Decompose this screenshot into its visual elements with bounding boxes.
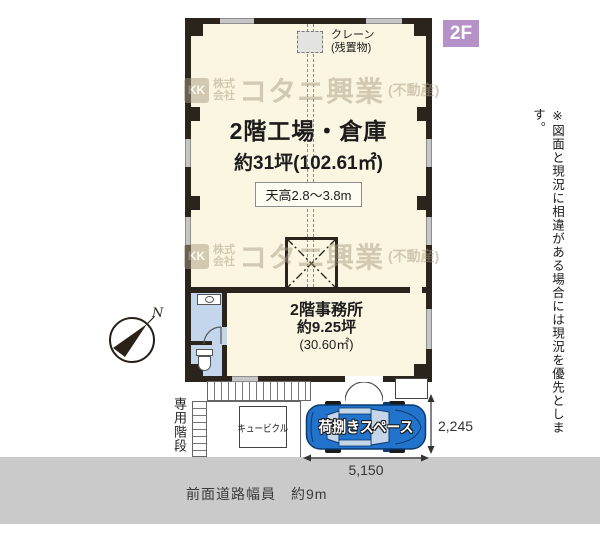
stairs-label: 専用階段 [170, 397, 189, 463]
side-box [395, 378, 428, 399]
toilet-bowl-icon [198, 356, 211, 371]
ground-boundary-line [207, 401, 300, 402]
window [426, 309, 432, 349]
dimension-width-label: 5,150 [303, 462, 429, 478]
factory-area: 約31坪(102.61㎡) [191, 148, 426, 175]
window [232, 376, 258, 382]
watermark: KK 株式 会社 コタニ興業 (不動産) [184, 70, 439, 110]
cubicle-label: キュービクル [238, 420, 289, 435]
watermark-company-name: コタニ興業 [239, 70, 384, 110]
svg-text:N: N [151, 306, 164, 321]
window [220, 18, 254, 24]
watermark-suffix: (不動産) [388, 246, 439, 266]
disclaimer-text: ※図面と現況に相違がある場合には現況を優先とします。 [529, 108, 567, 448]
ground-boundary-line [300, 401, 301, 457]
floorplan-canvas: 前面道路幅員 約9m KK 株式 会社 コタニ興業 (不動産) KK 株式 会社… [0, 0, 600, 540]
stairs-lower-flight [192, 401, 207, 457]
office-name: 2階事務所 [227, 302, 426, 319]
ceiling-height-label: 天高2.8〜3.8m [255, 182, 363, 207]
window [366, 18, 402, 24]
floor-badge: 2F [443, 20, 479, 47]
dimension-depth-label: 2,245 [438, 418, 473, 434]
wall-corner [191, 24, 203, 36]
watermark-logo: KK [184, 78, 209, 103]
stairs-upper-flight [207, 381, 311, 401]
loading-space-label: 荷捌きスペース [311, 416, 421, 437]
watermark-prefix: 株式 会社 [213, 78, 235, 102]
door-opening [345, 376, 383, 382]
factory-name: 2階工場・倉庫 [191, 112, 426, 146]
toilet-tank-icon [196, 349, 213, 356]
crane-icon [297, 31, 323, 53]
factory-room-label: 2階工場・倉庫 約31坪(102.61㎡) 天高2.8〜3.8m [191, 112, 426, 207]
wall-corner [414, 364, 426, 376]
watermark-logo: KK [184, 244, 209, 269]
road-width-label: 前面道路幅員 約9m [186, 484, 327, 504]
crane-label: クレーン (残置物) [331, 29, 374, 55]
door-opening [410, 287, 422, 293]
watermark-suffix: (不動産) [388, 80, 439, 100]
watermark: KK 株式 会社 コタニ興業 (不動産) [184, 236, 439, 276]
cubicle-box: キュービクル [239, 406, 287, 448]
sink-basin-icon [205, 296, 214, 303]
office-room-label: 2階事務所 約9.25坪 (30.60㎡) [227, 302, 426, 353]
office-area-m2: (30.60㎡) [227, 336, 426, 353]
watermark-company-name: コタニ興業 [239, 236, 384, 276]
compass-icon: N [103, 303, 167, 367]
window [426, 139, 432, 167]
office-area-tsubo: 約9.25坪 [227, 319, 426, 336]
wall-corner [414, 24, 426, 36]
door-swing-icon [202, 325, 223, 346]
double-door-swing-icon [345, 382, 383, 401]
dimension-arrow-vertical [426, 394, 436, 454]
watermark-prefix: 株式 会社 [213, 244, 235, 268]
